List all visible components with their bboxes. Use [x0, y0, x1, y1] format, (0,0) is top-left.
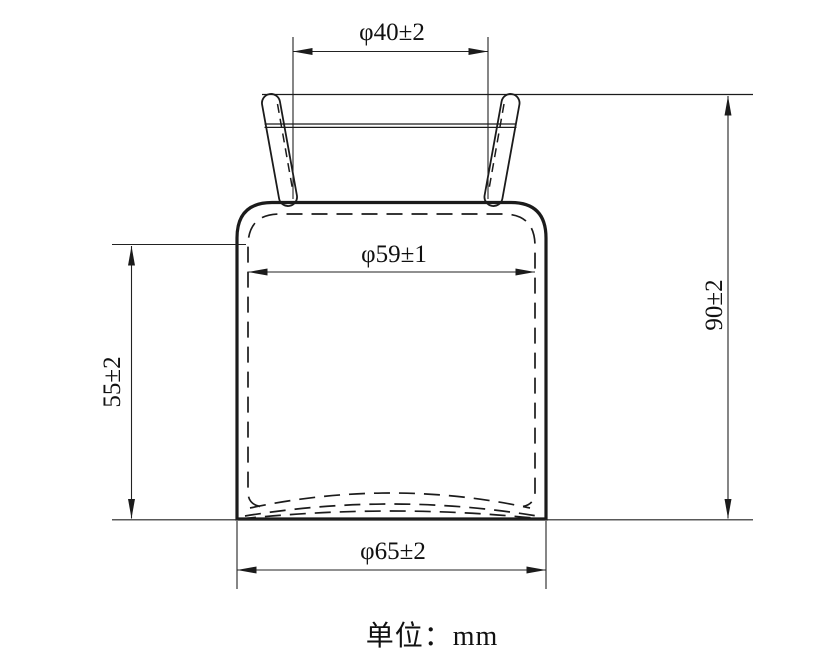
dimension-label-mouth-diameter: φ40±2: [359, 19, 425, 46]
technical-drawing-canvas: φ40±2 φ59±1 55±2 90±2 φ65±2 单位：mm: [0, 0, 829, 668]
dimension-label-overall-height: 90±2: [701, 279, 728, 330]
drawing-background: [0, 0, 829, 668]
dimension-label-body-height: 55±2: [99, 356, 126, 407]
unit-label: 单位：mm: [366, 620, 499, 652]
dimension-label-outer-diameter: φ65±2: [360, 538, 426, 565]
jar-dimension-drawing: φ40±2 φ59±1 55±2 90±2 φ65±2 单位：mm: [0, 0, 829, 668]
dimension-label-inner-diameter: φ59±1: [361, 241, 427, 268]
